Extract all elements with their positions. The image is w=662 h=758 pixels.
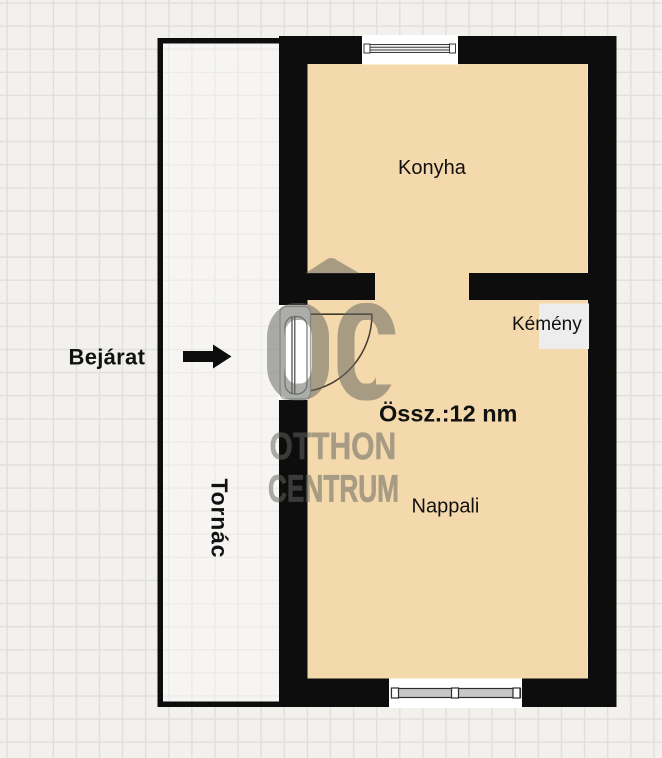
svg-text:CENTRUM: CENTRUM xyxy=(268,467,399,510)
svg-text:Nappali: Nappali xyxy=(412,496,480,518)
svg-text:Össz.:12 nm: Össz.:12 nm xyxy=(379,401,517,427)
svg-text:Kémény: Kémény xyxy=(512,314,582,335)
svg-text:Bejárat: Bejárat xyxy=(69,345,146,370)
svg-text:OTTHON: OTTHON xyxy=(270,426,397,468)
svg-text:Konyha: Konyha xyxy=(398,157,467,179)
svg-text:Tornác: Tornác xyxy=(207,479,233,559)
